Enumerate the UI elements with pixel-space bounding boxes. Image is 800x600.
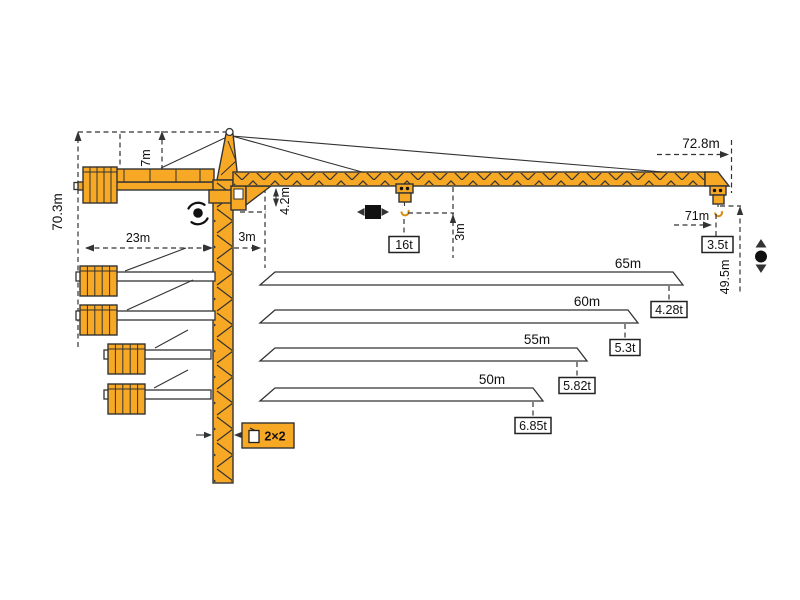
label-jib-capacity: 5.82t bbox=[563, 379, 591, 393]
jib-length-bar: 50m 6.85t bbox=[260, 372, 551, 434]
hoist-icon bbox=[755, 239, 767, 273]
counterweight-row bbox=[104, 330, 211, 374]
label-jib-length: 60m bbox=[574, 294, 600, 309]
dim-counterjib-radius-label: 23m bbox=[126, 231, 150, 245]
label-max-capacity: 16t bbox=[395, 238, 413, 252]
counterjib-radius-dimension: 23m bbox=[85, 231, 212, 252]
label-jib-capacity: 4.28t bbox=[655, 303, 683, 317]
counterweight-config-rows bbox=[76, 248, 215, 414]
dim-min-radius-label: 3m bbox=[238, 230, 255, 244]
mast-section-icon bbox=[249, 428, 259, 443]
hook-icon bbox=[401, 202, 408, 215]
tip-hook-radius-dimension: 71m bbox=[674, 209, 716, 236]
trolley bbox=[396, 184, 413, 215]
crane-load-diagram: 70.3m 7m 23m 3m 4.2m bbox=[0, 0, 800, 600]
max-capacity-label: 16t bbox=[389, 219, 419, 253]
dim-hook-clearance-label: 3m bbox=[453, 223, 467, 240]
dim-apex-height-label: 7m bbox=[139, 149, 153, 166]
jib-length-bar: 60m 5.3t bbox=[260, 294, 640, 356]
dim-tip-hook-radius-label: 71m bbox=[685, 209, 709, 223]
label-jib-length: 65m bbox=[615, 256, 641, 271]
label-jib-capacity: 6.85t bbox=[519, 419, 547, 433]
counterweight-block bbox=[83, 167, 117, 203]
tower-crane-dimension-drawing: 70.3m 7m 23m 3m 4.2m bbox=[0, 0, 800, 600]
label-mast-section: 2×2 bbox=[264, 430, 285, 444]
jib-length-bar: 65m 4.28t bbox=[260, 256, 687, 318]
slewing-icon bbox=[189, 203, 208, 224]
dim-max-radius-label: 72.8m bbox=[682, 136, 720, 151]
jib-length-bar: 55m 5.82t bbox=[260, 332, 595, 394]
jib-length-options: 65m 4.28t 60m 5.3t 55m 5.82t 50m 6.85t bbox=[260, 256, 687, 434]
label-jib-length: 50m bbox=[479, 372, 505, 387]
dim-tip-hook-height-label: 49.5m bbox=[718, 260, 732, 295]
label-jib-capacity: 5.3t bbox=[615, 341, 636, 355]
counterweight-row bbox=[76, 248, 215, 296]
mast-section-box: 2×2 bbox=[196, 423, 294, 448]
dim-total-height-label: 70.3m bbox=[50, 193, 65, 231]
label-tip-capacity: 3.5t bbox=[707, 238, 728, 252]
dim-jib-depth-label: 4.2m bbox=[278, 187, 292, 215]
cab-window bbox=[234, 189, 243, 199]
apex-pivot-icon bbox=[226, 129, 233, 136]
label-jib-length: 55m bbox=[524, 332, 550, 347]
tip-trolley bbox=[710, 186, 726, 216]
jib bbox=[233, 172, 729, 186]
jib-tip bbox=[705, 172, 729, 186]
jib-root-wedge bbox=[246, 186, 271, 205]
counterweight-row bbox=[104, 370, 211, 414]
trolley-travel-icon bbox=[357, 205, 389, 219]
tip-capacity-label: 3.5t bbox=[702, 237, 733, 253]
